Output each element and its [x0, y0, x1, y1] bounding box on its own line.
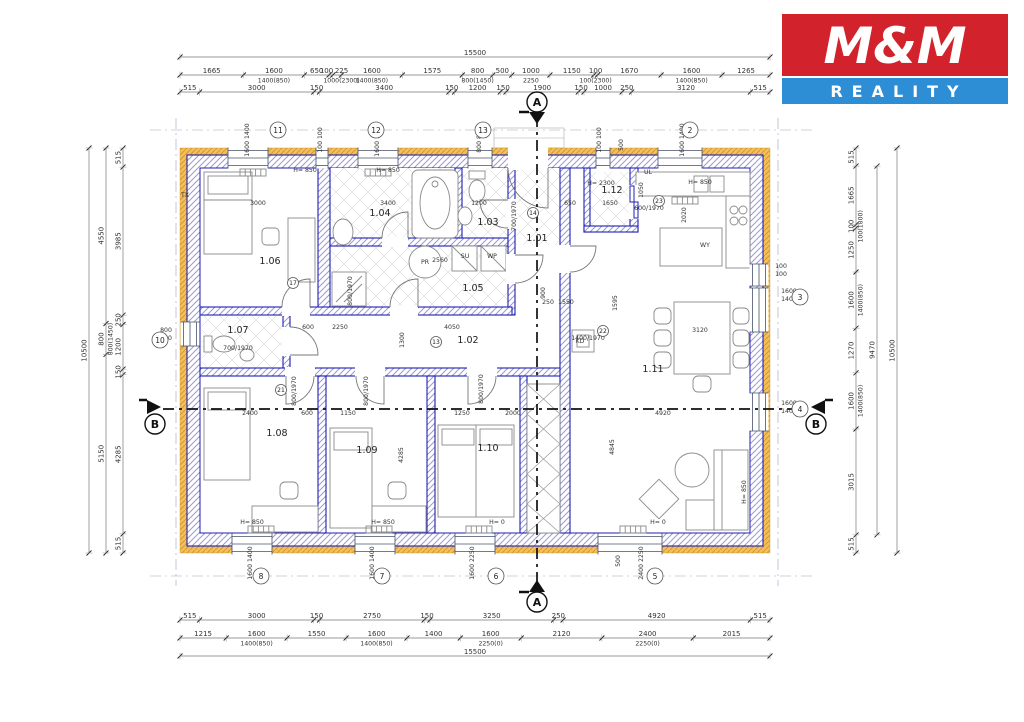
dim-label: 10500	[81, 339, 89, 361]
dim-label: 3400	[375, 84, 393, 92]
room-label: 1.06	[259, 256, 280, 267]
dim-label: 100	[589, 67, 602, 75]
annotation: 800/1970	[291, 376, 298, 406]
annotation: H= 0	[650, 519, 666, 526]
annotation: PR	[421, 259, 430, 266]
dim-sublabel: 1000(2300)	[323, 78, 359, 85]
dim-label: 150	[574, 84, 587, 92]
section-letter: A	[533, 96, 542, 109]
dim-label: 515	[754, 84, 767, 92]
annotation: 600	[302, 324, 314, 331]
annotation: SU	[461, 253, 469, 260]
room-label: 1.08	[266, 428, 287, 439]
annotation: H= 850	[376, 167, 400, 174]
dining-chair	[654, 308, 671, 324]
bed-106	[204, 172, 252, 254]
annotation: UL	[644, 169, 653, 176]
room-label: 1.03	[477, 217, 498, 228]
dining-chair	[733, 330, 749, 346]
dim-label: 3000	[248, 84, 266, 92]
section-letter: A	[533, 596, 542, 609]
grid-bubble-label: 8	[259, 572, 264, 581]
dim-label: 150	[445, 84, 458, 92]
dim-sublabel: 1400(850)	[858, 284, 865, 316]
dim-label: 1400	[425, 630, 443, 638]
dining-chair	[654, 330, 671, 346]
dim-label: 1200	[115, 338, 123, 356]
dim-label: 250	[620, 84, 633, 92]
annotation: 4845	[609, 439, 616, 455]
door-gap	[285, 367, 315, 377]
dim-label: 1265	[737, 67, 755, 75]
grid-bubble-label: 3	[798, 293, 803, 302]
dim-label: 515	[848, 537, 856, 550]
dim-label: 1250	[848, 241, 856, 259]
grid-bubble-label: 17	[289, 280, 297, 287]
annotation: 1600 1400	[244, 123, 251, 157]
washbasin-104	[333, 219, 353, 245]
dim-label: 2015	[723, 630, 741, 638]
annotation: 1650	[602, 200, 618, 207]
desk-106	[288, 218, 315, 282]
annotation: 3120	[692, 327, 708, 334]
annotation: 1300	[399, 332, 406, 348]
floor-plan-drawing: 15500166516001400(850)6501002251000(2300…	[0, 0, 1024, 722]
dim-label: 1600	[368, 630, 386, 638]
dim-label: 10500	[889, 339, 897, 361]
section-arrow	[529, 580, 545, 592]
annotation: 900	[540, 287, 547, 299]
grid-bubble-label: 13	[432, 339, 440, 346]
dim-label: 1550	[308, 630, 326, 638]
grid-bubble-label: 13	[478, 126, 488, 135]
annotation: KD	[576, 338, 585, 345]
dim-label: 1665	[203, 67, 221, 75]
bed-109	[330, 428, 372, 528]
annotation: 4285	[398, 447, 405, 463]
chair-109	[388, 482, 406, 499]
toilet-tank	[469, 171, 485, 179]
room-label: 1.04	[369, 208, 390, 219]
section-arrow	[811, 400, 825, 414]
annotation: 3000	[250, 200, 266, 207]
bed-108	[204, 388, 250, 480]
annotation: H= 850	[741, 480, 748, 504]
annotation: 100 100	[596, 127, 603, 153]
dim-label: 1150	[563, 67, 581, 75]
dim-label: 1600	[265, 67, 283, 75]
door-gap	[390, 306, 418, 316]
dim-label: 1600	[363, 67, 381, 75]
dim-label: 2400	[639, 630, 657, 638]
logo-reality-text: REALITY	[830, 82, 967, 101]
toilet-103	[469, 180, 485, 202]
entrance-porch	[494, 128, 564, 148]
chair-108	[280, 482, 298, 499]
dim-label: 3120	[677, 84, 695, 92]
dim-label: 250	[115, 313, 123, 326]
room-label: 1.05	[462, 283, 483, 294]
sofa-corner	[686, 500, 714, 530]
dim-label: 225	[335, 67, 348, 75]
annotation: 100	[775, 271, 787, 278]
room-label: 1.11	[642, 364, 663, 375]
dim-sublabel: 1400(850)	[240, 641, 272, 648]
dim-label: 150	[310, 84, 323, 92]
dim-label: 1575	[423, 67, 441, 75]
dim-label: 515	[183, 84, 196, 92]
dim-label: 150	[420, 612, 433, 620]
dim-label: 150	[496, 84, 509, 92]
dim-sublabel: 1400(850)	[360, 641, 392, 648]
grid-bubble-label: 21	[277, 387, 285, 394]
built-in-wardrobe	[527, 384, 560, 533]
annotation: 500	[618, 139, 625, 151]
annotation: H= 0	[489, 519, 505, 526]
door-gap	[282, 306, 310, 316]
dim-label: 3015	[848, 473, 856, 491]
annotation: WY	[700, 242, 710, 249]
dim-label: 3985	[115, 232, 123, 250]
dim-label: 100	[848, 220, 856, 233]
annotation: H= 850	[293, 167, 317, 174]
annotation: 2400 2250	[638, 546, 645, 580]
dim-label: 4285	[115, 445, 123, 463]
grid-bubble-label: 23	[655, 198, 663, 205]
annotation: 1595	[612, 295, 619, 311]
annotation: 4920	[655, 410, 671, 417]
dim-label: 4920	[648, 612, 666, 620]
annotation: H= 2300	[587, 180, 615, 187]
door-gap	[355, 367, 385, 377]
dim-label: 1670	[620, 67, 638, 75]
annotation: 1250	[454, 410, 470, 417]
door-gap	[506, 254, 517, 284]
annotation: 1150	[340, 410, 356, 417]
sliding-door	[630, 186, 634, 202]
door-gap	[559, 245, 571, 273]
annotation: 1050	[638, 182, 645, 198]
grid-bubble-label: 7	[380, 572, 385, 581]
room-label: 1.07	[227, 325, 248, 336]
dim-label: 1900	[533, 84, 551, 92]
section-letter: B	[151, 418, 159, 431]
grid-bubble-label: 14	[529, 210, 537, 217]
dim-label: 15500	[464, 648, 486, 656]
dim-label: 2750	[363, 612, 381, 620]
annotation: 2000	[505, 410, 521, 417]
dining-table	[674, 302, 730, 374]
dim-label: 1600	[683, 67, 701, 75]
floor-plan-sheet: { "logo": {"line1": "M&M", "line2": "REA…	[0, 0, 1024, 722]
dim-label: 515	[754, 612, 767, 620]
dim-label: 15500	[464, 49, 486, 57]
dim-sublabel: 800(1450)	[108, 323, 115, 355]
grid-bubble-label: 6	[494, 572, 499, 581]
annotation: H= 850	[688, 179, 712, 186]
dim-label: 250	[552, 612, 565, 620]
kitchen-island	[660, 228, 722, 266]
annotation: 100 100	[317, 127, 324, 153]
room-label: 1.01	[526, 233, 547, 244]
dim-label: 515	[115, 151, 123, 164]
room-label: 1.02	[457, 335, 478, 346]
annotation: 1200	[471, 200, 487, 207]
dim-label: 3000	[248, 612, 266, 620]
annotation: 600	[301, 410, 313, 417]
annotation: H= 850	[240, 519, 264, 526]
annotation: 2250	[332, 324, 348, 331]
annotation: TX	[180, 192, 190, 199]
dim-label: 515	[183, 612, 196, 620]
annotation: 4050	[444, 324, 460, 331]
dim-label: 515	[115, 537, 123, 550]
dining-chair	[733, 352, 749, 368]
kitchen-counter-side	[726, 196, 750, 268]
dim-label: 1000	[522, 67, 540, 75]
section-arrow	[147, 400, 161, 414]
grid-bubble-label: 10	[155, 336, 165, 345]
annotation: 700/1970	[511, 201, 518, 231]
grid-bubble-label: 5	[653, 572, 658, 581]
dim-label: 1200	[469, 84, 487, 92]
dim-label: 1600	[848, 291, 856, 309]
grid-bubble-label: 2	[688, 126, 693, 135]
annotation: 2020	[681, 207, 688, 223]
annotation: 650	[564, 200, 576, 207]
annotation: 3400	[380, 200, 396, 207]
annotation: 700/1970	[223, 345, 253, 352]
annotation: 100	[775, 263, 787, 270]
chair-106	[262, 228, 279, 245]
grid-bubble-label: 11	[273, 126, 283, 135]
dim-label: 9470	[869, 341, 877, 359]
dim-label: 1215	[194, 630, 212, 638]
dim-sublabel: 1400(850)	[858, 385, 865, 417]
grid-bubble-label: 4	[798, 405, 803, 414]
mm-reality-logo: M&M REALITY	[782, 14, 1008, 104]
annotation: 1550	[558, 299, 574, 306]
dim-label: 5150	[98, 445, 106, 463]
dim-label: 1270	[848, 342, 856, 360]
annotation: WP	[487, 253, 497, 260]
dim-label: 800	[98, 332, 106, 345]
dim-label: 1600	[248, 630, 266, 638]
section-letter: B	[812, 418, 820, 431]
door-gap	[508, 146, 548, 170]
toilet-tank-107	[204, 336, 212, 352]
bathtub	[412, 170, 458, 238]
dim-label: 4550	[98, 227, 106, 245]
room-label: 1.09	[356, 445, 377, 456]
coffee-table	[675, 453, 709, 487]
dim-sublabel: 2250(0)	[635, 641, 660, 648]
dining-chair	[733, 308, 749, 324]
dining-chair	[693, 376, 711, 392]
dim-label: 515	[848, 150, 856, 163]
section-arrow	[529, 112, 545, 124]
annotation: 2560	[432, 257, 448, 264]
annotation: H= 850	[371, 519, 395, 526]
annotation: 250	[542, 299, 554, 306]
grid-bubble-label: 22	[599, 328, 607, 335]
dim-label: 800	[471, 67, 484, 75]
annotation: 800/1970	[347, 276, 354, 306]
dim-label: 1665	[848, 186, 856, 204]
annotation: 800/1970	[478, 374, 485, 404]
dim-label: 500	[496, 67, 509, 75]
door-gap	[282, 327, 292, 356]
dim-label: 1600	[482, 630, 500, 638]
logo-mm-text: M&M	[823, 17, 966, 75]
annotation: 800/1970	[363, 376, 370, 406]
annotation: 500	[615, 555, 622, 567]
washbasin-103	[458, 207, 472, 225]
dim-label: 150	[310, 612, 323, 620]
dim-label: 100	[320, 67, 333, 75]
dim-label: 3250	[483, 612, 501, 620]
dim-sublabel: 2250(0)	[478, 641, 503, 648]
dim-sublabel: 100(1800)	[858, 210, 865, 242]
room-label: 1.10	[477, 443, 498, 454]
dim-label: 150	[115, 365, 123, 378]
door-gap	[382, 237, 408, 247]
dim-label: 1000	[594, 84, 612, 92]
dim-label: 2120	[553, 630, 571, 638]
grid-bubble-label: 12	[371, 126, 381, 135]
annotation: 1600 2250	[469, 546, 476, 580]
dim-label: 1600	[848, 392, 856, 410]
annotation: 2400	[242, 410, 258, 417]
